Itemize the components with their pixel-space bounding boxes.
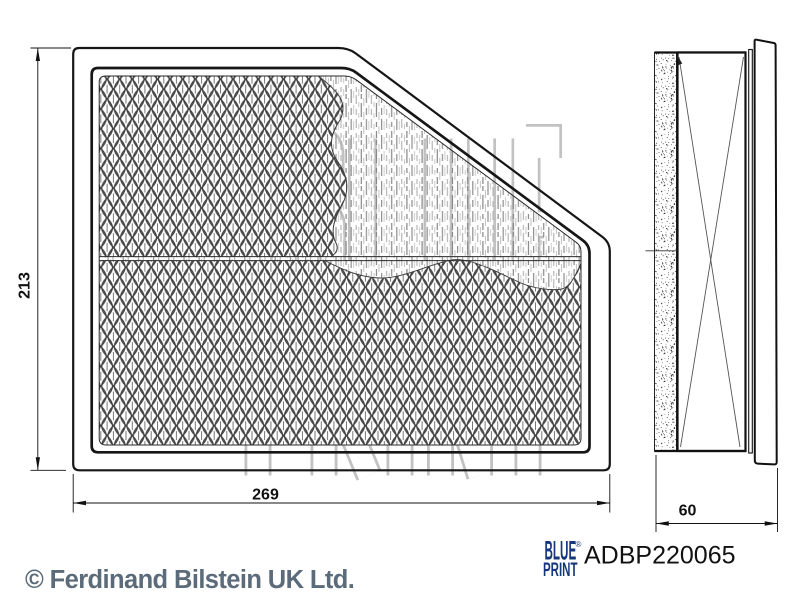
svg-text:213: 213 xyxy=(17,272,34,299)
svg-text:®: ® xyxy=(576,540,582,549)
svg-text:© Ferdinand Bilstein UK Ltd.: © Ferdinand Bilstein UK Ltd. xyxy=(25,566,354,594)
svg-text:60: 60 xyxy=(679,503,697,520)
svg-text:269: 269 xyxy=(252,487,279,504)
svg-text:PRINT: PRINT xyxy=(543,560,578,581)
svg-text:ADBP220065: ADBP220065 xyxy=(584,542,736,570)
